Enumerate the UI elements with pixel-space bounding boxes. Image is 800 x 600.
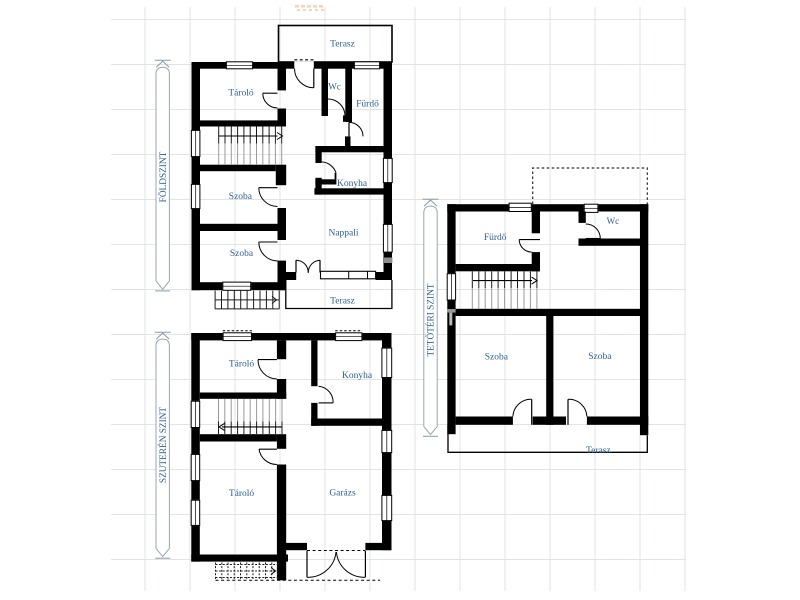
svg-text:SZUTERÉN SZINT: SZUTERÉN SZINT [157, 407, 169, 483]
svg-text:Szoba: Szoba [229, 192, 253, 202]
svg-text:Szoba: Szoba [230, 249, 254, 259]
svg-text:Tároló: Tároló [229, 489, 255, 499]
svg-text:Konyha: Konyha [342, 371, 373, 381]
svg-text:Terasz: Terasz [586, 446, 611, 456]
svg-text:Konyha: Konyha [337, 179, 368, 189]
svg-text:Fürdő: Fürdő [484, 233, 507, 243]
svg-text:Tároló: Tároló [228, 89, 254, 99]
svg-text:Wc: Wc [607, 216, 620, 226]
svg-text:Nappali: Nappali [328, 228, 358, 238]
svg-text:Wc: Wc [328, 82, 341, 92]
svg-text:FÖLDSZINT: FÖLDSZINT [157, 151, 169, 202]
svg-text:Tároló: Tároló [229, 360, 255, 370]
svg-text:Terasz: Terasz [330, 40, 355, 50]
svg-text:TETŐTÉRI SZINT: TETŐTÉRI SZINT [425, 283, 437, 356]
svg-text:Garázs: Garázs [329, 489, 356, 499]
svg-text:Fürdő: Fürdő [356, 100, 379, 110]
svg-text:Szoba: Szoba [485, 353, 509, 363]
svg-text:Terasz: Terasz [330, 297, 355, 307]
svg-text:Szoba: Szoba [588, 352, 612, 362]
